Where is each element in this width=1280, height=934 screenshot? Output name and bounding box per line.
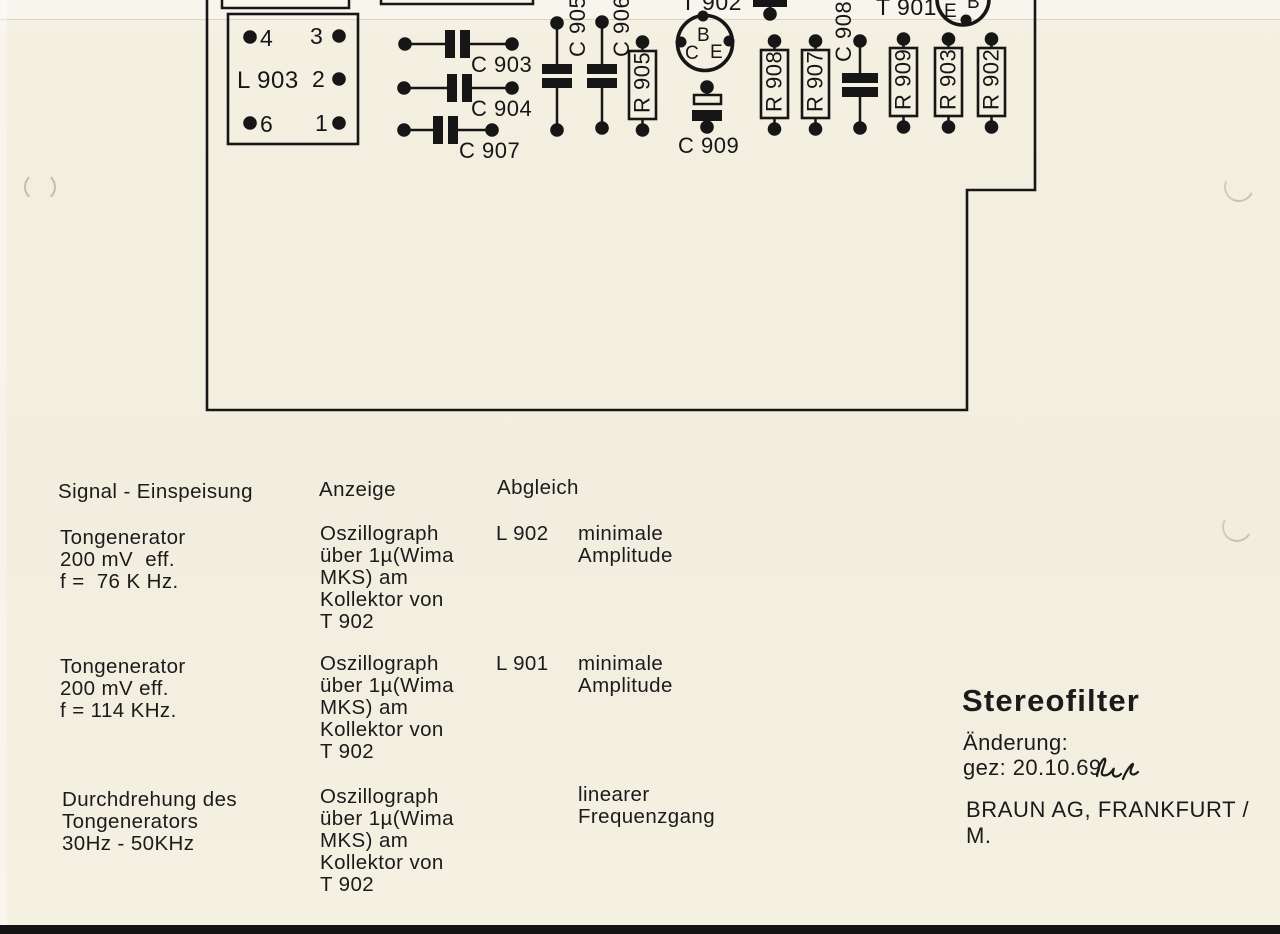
- table-cell-abgleich-ref-row1: L 902: [496, 523, 549, 545]
- svg-text:R 903: R 903: [936, 49, 961, 110]
- svg-text:B: B: [967, 0, 980, 13]
- signature-scribble: [1090, 750, 1142, 788]
- component-r902: R 902: [978, 32, 1005, 134]
- component-r905: R 905: [629, 35, 656, 137]
- table-cell-anzeige-row1: Oszillograph über 1µ(Wima MKS) am Kollek…: [320, 523, 454, 633]
- table-cell-anzeige-row2: Oszillograph über 1µ(Wima MKS) am Kollek…: [320, 653, 454, 763]
- table-cell-abgleich-result-row2: minimale Amplitude: [578, 653, 673, 697]
- table-cell-signal-row3: Durchdrehung des Tongenerators 30Hz - 50…: [62, 789, 237, 855]
- svg-text:C 903: C 903: [471, 52, 532, 77]
- component-c907: C 907: [397, 116, 520, 163]
- svg-text:T 902: T 902: [681, 0, 742, 15]
- svg-text:R 907: R 907: [803, 51, 828, 112]
- svg-text:2: 2: [312, 66, 325, 92]
- table-cell-signal-row1: Tongenerator 200 mV eff. f = 76 K Hz.: [60, 527, 186, 593]
- pcb-layout-diagram: L 90343261C 903C 904C 907C 905C 906C 908…: [0, 0, 1280, 460]
- component-r909: R 909: [890, 32, 917, 134]
- svg-text:C 905: C 905: [565, 0, 590, 57]
- change-label: Änderung:: [963, 730, 1068, 756]
- svg-text:E: E: [710, 42, 723, 63]
- column-header-anzeige: Anzeige: [319, 479, 396, 501]
- table-cell-anzeige-row3: Oszillograph über 1µ(Wima MKS) am Kollek…: [320, 786, 454, 896]
- svg-text:R 902: R 902: [979, 49, 1004, 110]
- svg-text:4: 4: [260, 25, 273, 51]
- column-header-signal: Signal - Einspeisung: [58, 481, 253, 503]
- punch-hole: [24, 172, 56, 202]
- svg-text:3: 3: [310, 23, 323, 49]
- component-c904: C 904: [397, 74, 532, 121]
- component-c909: C 909: [678, 80, 739, 158]
- partial-component-box: [222, 0, 349, 8]
- component-c903: C 903: [398, 30, 532, 77]
- svg-text:C 908: C 908: [831, 1, 856, 62]
- svg-text:C 906: C 906: [609, 0, 634, 57]
- component-r907: R 907: [802, 34, 829, 136]
- svg-text:R 908: R 908: [762, 51, 787, 112]
- component-stub: [753, 0, 787, 21]
- svg-text:6: 6: [260, 111, 273, 137]
- svg-text:R 905: R 905: [630, 52, 655, 113]
- svg-text:L 903: L 903: [237, 67, 299, 94]
- component-c908: C 908: [831, 1, 878, 135]
- scanned-service-sheet: L 90343261C 903C 904C 907C 905C 906C 908…: [0, 0, 1280, 934]
- table-cell-abgleich-result-row1: minimale Amplitude: [578, 523, 673, 567]
- svg-text:1: 1: [315, 110, 328, 136]
- company-name: BRAUN AG, FRANKFURT / M.: [966, 797, 1280, 849]
- component-c906: C 906: [587, 0, 634, 135]
- table-cell-signal-row2: Tongenerator 200 mV eff. f = 114 KHz.: [60, 656, 186, 722]
- component-c905: C 905: [542, 0, 590, 137]
- svg-text:T 901: T 901: [876, 0, 937, 20]
- component-r908: R 908: [761, 34, 788, 136]
- svg-text:C 907: C 907: [459, 138, 520, 163]
- table-cell-abgleich-ref-row2: L 901: [496, 653, 549, 675]
- signed-date: gez: 20.10.69: [963, 755, 1102, 781]
- component-t901: EBT 901: [876, 0, 989, 26]
- partial-component-box: [381, 0, 533, 4]
- component-l903: L 90343261: [228, 14, 358, 144]
- svg-text:E: E: [944, 1, 957, 22]
- svg-text:C 909: C 909: [678, 133, 739, 158]
- svg-text:R 909: R 909: [891, 49, 916, 110]
- svg-text:C: C: [685, 43, 699, 64]
- svg-text:C 904: C 904: [471, 96, 532, 121]
- scan-bottom-edge: [0, 925, 1280, 934]
- component-r903: R 903: [935, 32, 962, 134]
- table-cell-abgleich-result-row3: linearer Frequenzgang: [578, 784, 715, 828]
- document-title: Stereofilter: [962, 683, 1140, 719]
- punch-hole: [1219, 509, 1256, 546]
- column-header-abgleich: Abgleich: [497, 477, 579, 499]
- component-t902: BCET 902: [676, 0, 742, 71]
